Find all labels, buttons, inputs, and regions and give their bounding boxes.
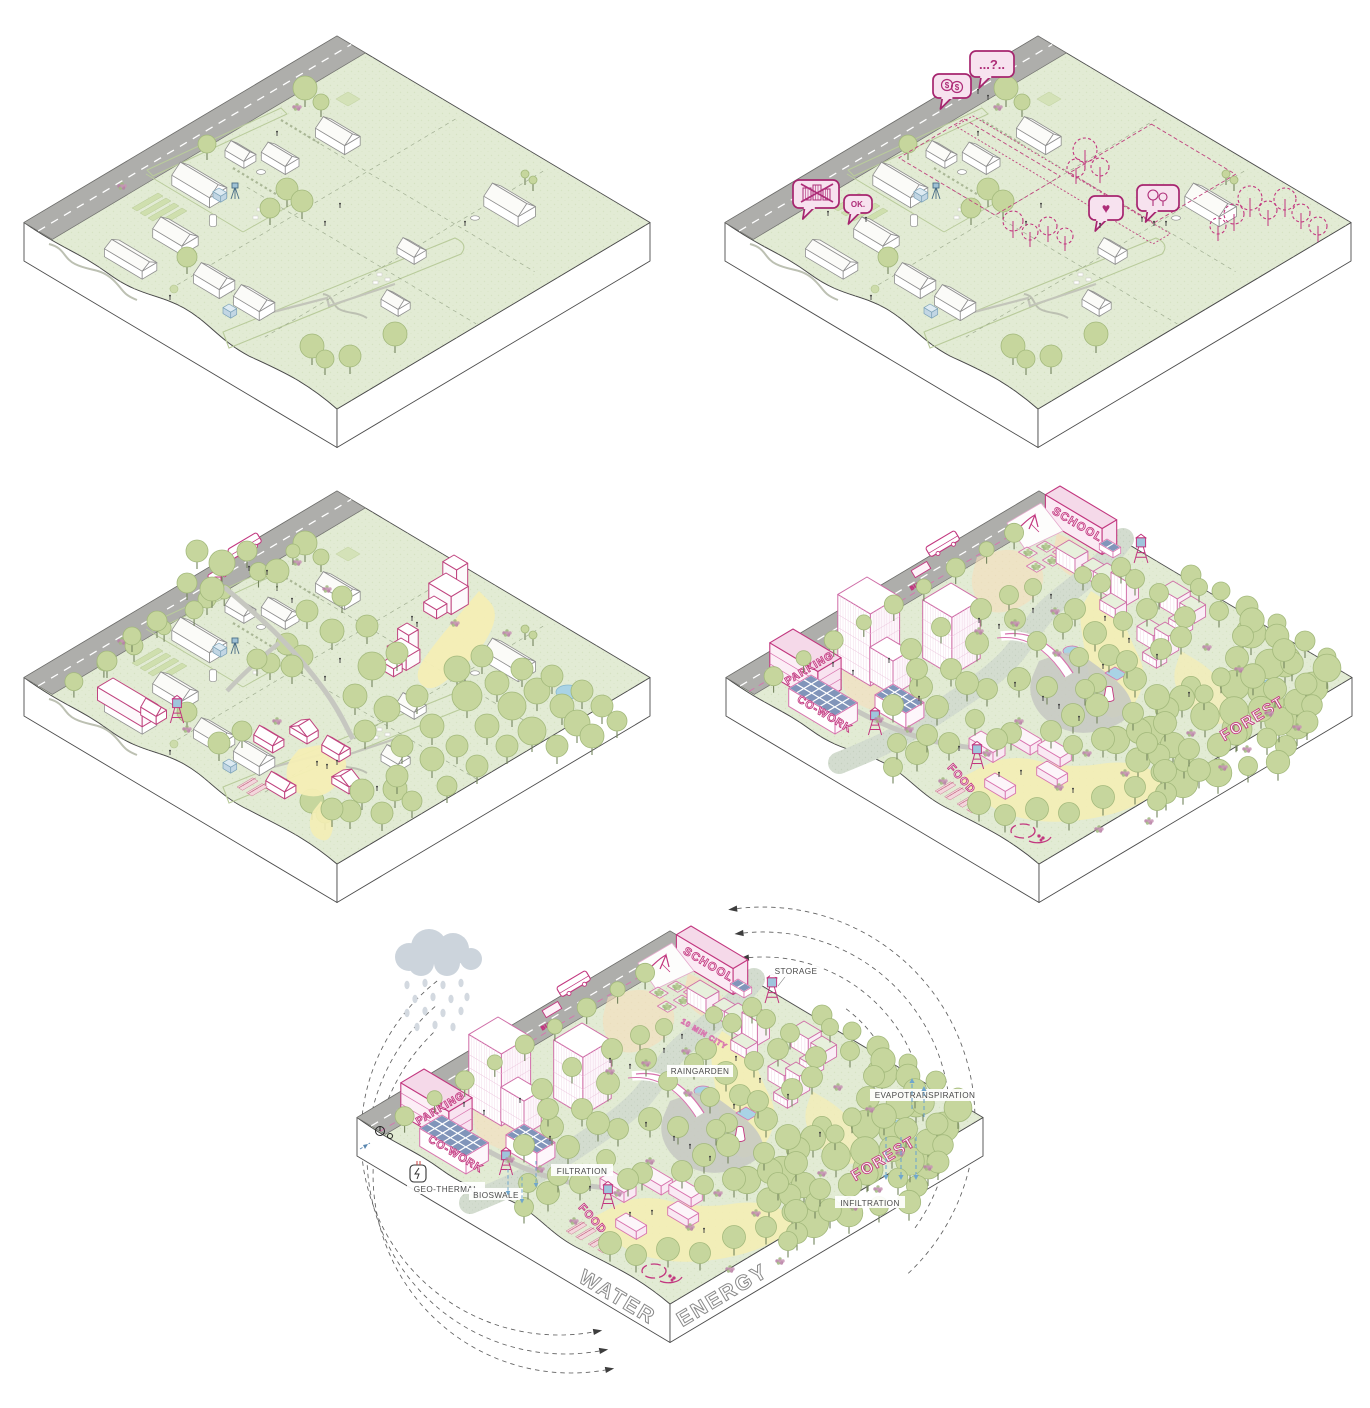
- svg-text:FILTRATION: FILTRATION: [557, 1167, 608, 1176]
- svg-text:INFILTRATION: INFILTRATION: [840, 1199, 900, 1208]
- svg-text:$: $: [945, 81, 950, 90]
- svg-text:$: $: [955, 83, 960, 92]
- svg-text:RAINGARDEN: RAINGARDEN: [671, 1067, 730, 1076]
- svg-text:STORAGE: STORAGE: [775, 967, 818, 976]
- svg-text:♥: ♥: [1102, 200, 1110, 216]
- svg-text:BIOSWALE: BIOSWALE: [473, 1191, 519, 1200]
- svg-text:EVAPOTRANSPIRATION: EVAPOTRANSPIRATION: [875, 1091, 976, 1100]
- svg-text:OK.: OK.: [851, 200, 865, 209]
- svg-text:...?..: ...?..: [979, 57, 1005, 72]
- svg-text:GEO-THERMAL: GEO-THERMAL: [414, 1185, 478, 1194]
